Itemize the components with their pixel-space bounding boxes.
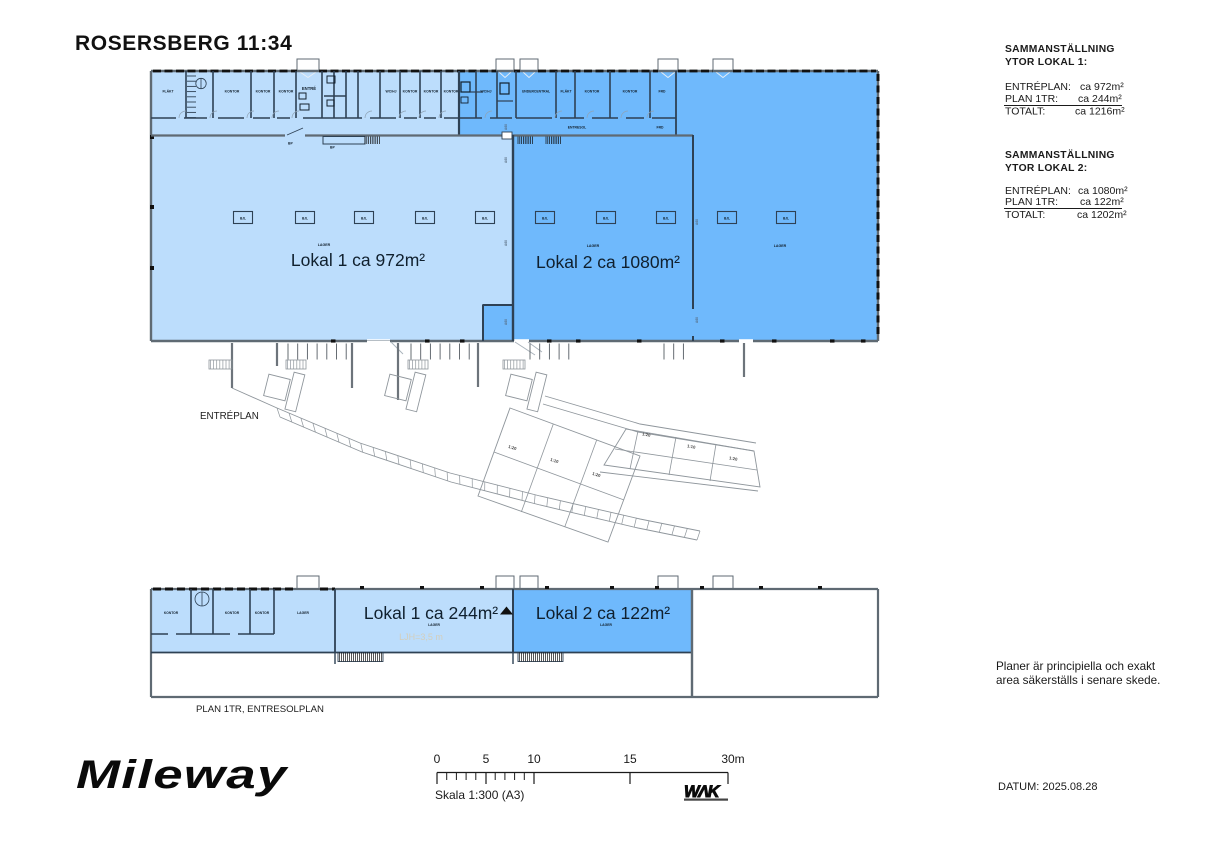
svg-text:KONTOR: KONTOR xyxy=(256,90,271,94)
svg-text:UNDERCENTRAL: UNDERCENTRAL xyxy=(522,90,550,94)
svg-text:ca 122m²: ca 122m² xyxy=(1080,196,1124,208)
svg-text:BP: BP xyxy=(288,142,293,146)
svg-text:BJL: BJL xyxy=(482,217,488,221)
svg-text:LJH=3,5 m: LJH=3,5 m xyxy=(399,632,443,642)
svg-text:FRD: FRD xyxy=(659,90,667,94)
svg-text:Lokal 1 ca 972m²: Lokal 1 ca 972m² xyxy=(291,250,425,270)
svg-text:10: 10 xyxy=(527,752,541,766)
svg-text:30m: 30m xyxy=(721,752,744,766)
svg-text:SAMMANSTÄLLNING: SAMMANSTÄLLNING xyxy=(1005,42,1115,55)
svg-text:BJL: BJL xyxy=(542,217,548,221)
svg-text:SAMMANSTÄLLNING: SAMMANSTÄLLNING xyxy=(1005,148,1115,161)
svg-text:Lokal 2 ca 122m²: Lokal 2 ca 122m² xyxy=(536,603,670,623)
svg-text:BJL: BJL xyxy=(663,217,669,221)
svg-text:A60: A60 xyxy=(504,240,508,246)
svg-text:KONTOR: KONTOR xyxy=(623,90,638,94)
svg-text:ca 1202m²: ca 1202m² xyxy=(1077,209,1127,221)
svg-text:Lokal 2 ca 1080m²: Lokal 2 ca 1080m² xyxy=(536,252,680,272)
svg-text:LAGER: LAGER xyxy=(318,243,331,247)
svg-text:PLAN 1TR:: PLAN 1TR: xyxy=(1005,196,1058,208)
svg-text:5: 5 xyxy=(483,752,490,766)
svg-text:TOTALT:: TOTALT: xyxy=(1005,209,1045,221)
svg-text:YTOR LOKAL 2:: YTOR LOKAL 2: xyxy=(1005,163,1087,174)
svg-text:ENTRÉPLAN: ENTRÉPLAN xyxy=(200,411,259,422)
svg-text:PLAN 1TR, ENTRESOLPLAN: PLAN 1TR, ENTRESOLPLAN xyxy=(196,704,324,715)
svg-text:A60: A60 xyxy=(504,157,508,163)
svg-text:Planer är principiella och exa: Planer är principiella och exakt xyxy=(996,660,1156,673)
svg-text:BJL: BJL xyxy=(361,217,367,221)
svg-text:KONTOR: KONTOR xyxy=(279,90,294,94)
svg-text:KONTOR: KONTOR xyxy=(255,611,270,615)
svg-text:Mileway: Mileway xyxy=(76,752,289,796)
svg-text:ca 1216m²: ca 1216m² xyxy=(1075,106,1125,118)
svg-text:FRD: FRD xyxy=(657,126,665,130)
svg-text:LAGER: LAGER xyxy=(774,244,787,248)
svg-text:KONTOR: KONTOR xyxy=(444,90,459,94)
svg-text:LAGER: LAGER xyxy=(600,623,612,627)
svg-text:ROSERSBERG 11:34: ROSERSBERG 11:34 xyxy=(75,32,292,55)
svg-text:A60: A60 xyxy=(504,319,508,325)
svg-text:area säkerställs i senare sked: area säkerställs i senare skede. xyxy=(996,674,1160,687)
svg-text:ca 244m²: ca 244m² xyxy=(1078,93,1122,105)
svg-text:DATUM: 2025.08.28: DATUM: 2025.08.28 xyxy=(998,781,1097,793)
svg-text:KONTOR: KONTOR xyxy=(403,90,418,94)
svg-text:BJL: BJL xyxy=(783,217,789,221)
svg-text:LAGER: LAGER xyxy=(297,611,309,615)
svg-text:15: 15 xyxy=(623,752,637,766)
svg-text:TOTALT:: TOTALT: xyxy=(1005,106,1045,118)
svg-text:0: 0 xyxy=(434,752,441,766)
svg-text:Skala 1:300 (A3): Skala 1:300 (A3) xyxy=(435,788,524,802)
svg-text:ENTRÉPLAN:: ENTRÉPLAN: xyxy=(1005,80,1071,93)
svg-text:A60: A60 xyxy=(695,317,699,323)
svg-text:WC/HJ: WC/HJ xyxy=(481,90,492,94)
svg-text:BP: BP xyxy=(330,146,335,150)
svg-text:WC/HJ: WC/HJ xyxy=(386,90,397,94)
svg-text:KONTOR: KONTOR xyxy=(585,90,600,94)
svg-text:ENTRÉ: ENTRÉ xyxy=(302,86,316,91)
svg-text:BJL: BJL xyxy=(422,217,428,221)
svg-text:PLAN 1TR:: PLAN 1TR: xyxy=(1005,93,1058,105)
svg-text:FLÄKT: FLÄKT xyxy=(560,90,572,94)
svg-text:ENTRESOL: ENTRESOL xyxy=(568,126,586,130)
svg-text:BJL: BJL xyxy=(603,217,609,221)
svg-text:Lokal 1 ca 244m²: Lokal 1 ca 244m² xyxy=(364,603,498,623)
svg-text:LAGER: LAGER xyxy=(428,623,440,627)
svg-text:A60: A60 xyxy=(504,124,508,130)
svg-text:BJL: BJL xyxy=(724,217,730,221)
svg-text:KONTOR: KONTOR xyxy=(164,611,179,615)
svg-text:LAGER: LAGER xyxy=(587,244,600,248)
svg-text:BJL: BJL xyxy=(302,217,308,221)
svg-text:WΛK: WΛK xyxy=(684,783,721,801)
svg-text:KONTOR: KONTOR xyxy=(225,90,240,94)
svg-text:A60: A60 xyxy=(695,219,699,225)
svg-text:KONTOR: KONTOR xyxy=(225,611,240,615)
svg-text:BJL: BJL xyxy=(240,217,246,221)
svg-text:KONTOR: KONTOR xyxy=(424,90,439,94)
svg-text:YTOR LOKAL 1:: YTOR LOKAL 1: xyxy=(1005,57,1087,68)
svg-text:FLÄKT: FLÄKT xyxy=(162,90,174,94)
svg-text:ca 972m²: ca 972m² xyxy=(1080,81,1124,93)
